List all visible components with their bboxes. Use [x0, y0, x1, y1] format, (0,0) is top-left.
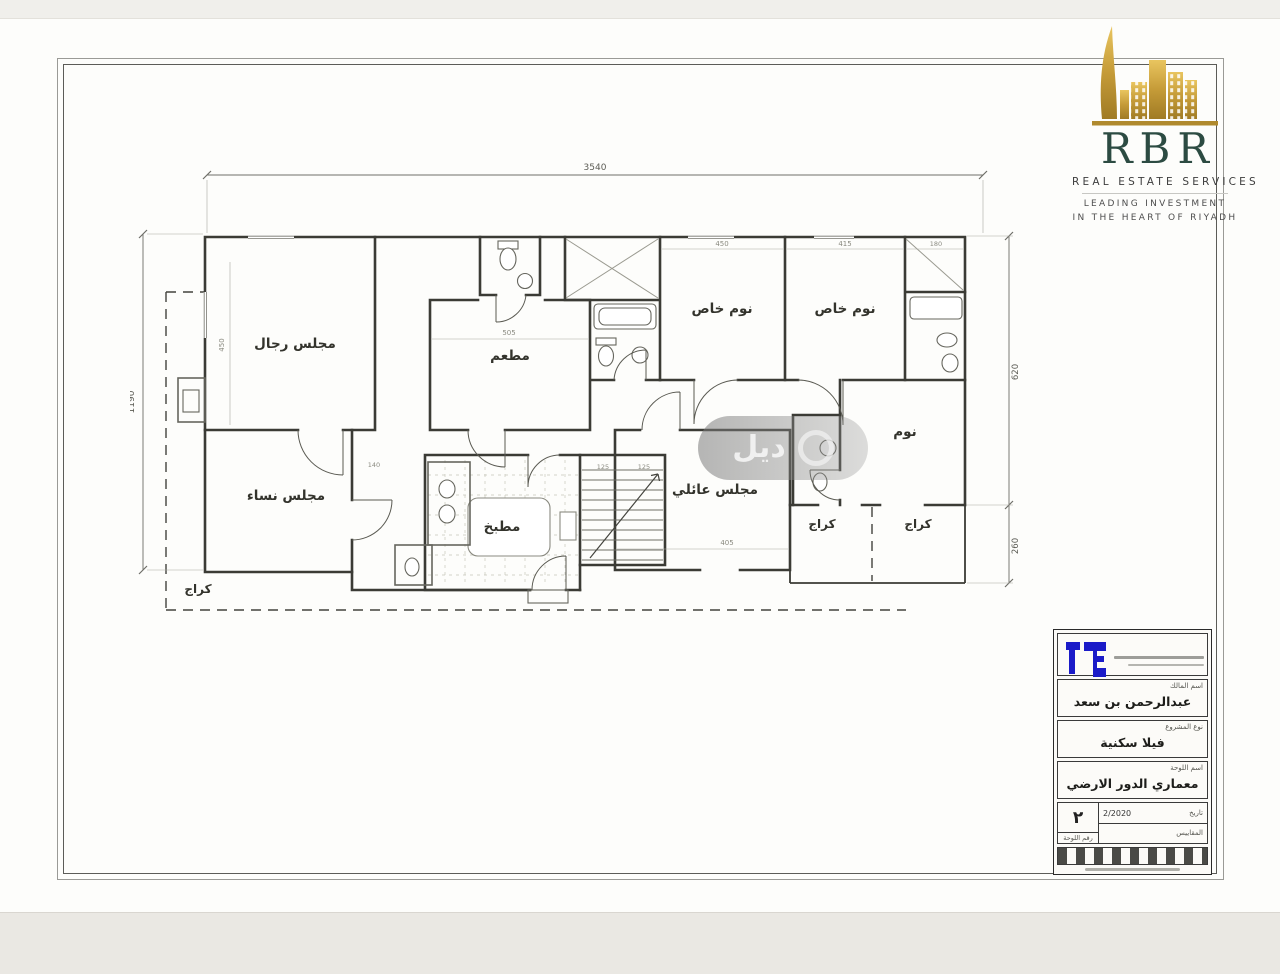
dim-interior: 415 — [838, 240, 851, 248]
brand-subline-2: IN THE HEART OF RIYADH — [1072, 212, 1238, 226]
title-block: اسم المالك عبدالرحمن بن سعد نوع المشروع … — [1053, 629, 1212, 875]
dim-interior: 505 — [502, 329, 515, 337]
dim-interior: 125 — [597, 463, 609, 471]
sheet-title: معماري الدور الارضي — [1062, 776, 1203, 791]
dim-right-upper: 620 — [1011, 364, 1021, 380]
drawing-sheet: 3540 1190 620 260 450 415 180 505 405 12… — [0, 0, 1280, 974]
site-watermark: ديل — [698, 416, 868, 480]
sheet-field: اسم اللوحة معماري الدور الارضي — [1057, 761, 1208, 799]
brand-name: RBR — [1072, 128, 1238, 170]
room-label-bedroom-2: نوم خاص — [814, 301, 875, 317]
meta-left-column: تاريخ 2/2020 المقاييس — [1098, 803, 1207, 843]
engineering-office-logo — [1064, 640, 1108, 680]
rbr-logo: RBR REAL ESTATE SERVICES LEADING INVESTM… — [1072, 24, 1238, 226]
dim-interior: 180 — [930, 240, 942, 248]
light-court-x — [566, 239, 963, 298]
sheet-number-label: رقم اللوحة — [1058, 832, 1098, 843]
footer-text-line — [1085, 868, 1180, 871]
room-label-majlis-rijal: مجلس رجال — [254, 336, 336, 352]
room-label-garage-1: كراج — [808, 517, 835, 531]
graphic-scale-bar — [1057, 847, 1208, 865]
room-label-garage-left: كراج — [184, 582, 211, 596]
room-label-garage-2: كراج — [904, 517, 931, 531]
dim-interior: 450 — [715, 240, 728, 248]
project-type: فيلا سكنية — [1062, 735, 1203, 750]
floor-plan-drawing: 3540 1190 620 260 450 415 180 505 405 12… — [130, 160, 1030, 630]
owner-label: اسم المالك — [1062, 682, 1203, 690]
scale-label: المقاييس — [1176, 829, 1203, 837]
room-label-dining: مطعم — [490, 348, 530, 364]
project-label: نوع المشروع — [1062, 723, 1203, 731]
dim-overall-width: 3540 — [584, 163, 607, 173]
date-row: تاريخ 2/2020 — [1099, 803, 1207, 824]
room-label-family-majlis: مجلس عائلي — [672, 482, 758, 498]
dim-interior: 125 — [638, 463, 650, 471]
room-label-kitchen: مطبخ — [484, 519, 521, 535]
dim-overall-depth: 1190 — [130, 390, 137, 413]
room-label-bedroom-1: نوم خاص — [691, 301, 752, 317]
scale-row: المقاييس — [1099, 824, 1207, 844]
owner-field: اسم المالك عبدالرحمن بن سعد — [1057, 679, 1208, 717]
skyline-icon — [1092, 24, 1218, 126]
dim-interior: 450 — [218, 338, 226, 351]
sheet-number: ٢ — [1073, 803, 1083, 832]
meta-row: تاريخ 2/2020 المقاييس ٢ رقم اللوحة — [1057, 802, 1208, 844]
room-label-bedroom-3: نوم — [893, 424, 916, 440]
staircase — [582, 470, 663, 560]
date-label: تاريخ — [1189, 809, 1203, 817]
owner-name: عبدالرحمن بن سعد — [1062, 694, 1203, 709]
brand-subline-1: LEADING INVESTMENT — [1072, 198, 1238, 212]
room-label-majlis-nisa: مجلس نساء — [247, 488, 325, 504]
sheet-label: اسم اللوحة — [1062, 764, 1203, 772]
header-text-line — [1128, 664, 1204, 666]
brand-tagline: REAL ESTATE SERVICES — [1072, 176, 1238, 188]
dim-right-lower: 260 — [1011, 538, 1021, 554]
sheet-top-edge — [0, 0, 1280, 19]
dim-interior: 405 — [720, 539, 733, 547]
sheet-bottom-edge — [0, 912, 1280, 974]
sheet-number-cell: ٢ رقم اللوحة — [1058, 803, 1098, 843]
dim-interior: 140 — [368, 461, 380, 469]
project-field: نوع المشروع فيلا سكنية — [1057, 720, 1208, 758]
divider — [1082, 193, 1228, 194]
watermark-text: ديل — [732, 433, 785, 463]
walls — [205, 237, 965, 590]
header-text-line — [1114, 656, 1204, 659]
watermark-ring-icon — [798, 430, 834, 466]
date-value: 2/2020 — [1103, 809, 1131, 818]
title-block-header — [1057, 633, 1208, 676]
